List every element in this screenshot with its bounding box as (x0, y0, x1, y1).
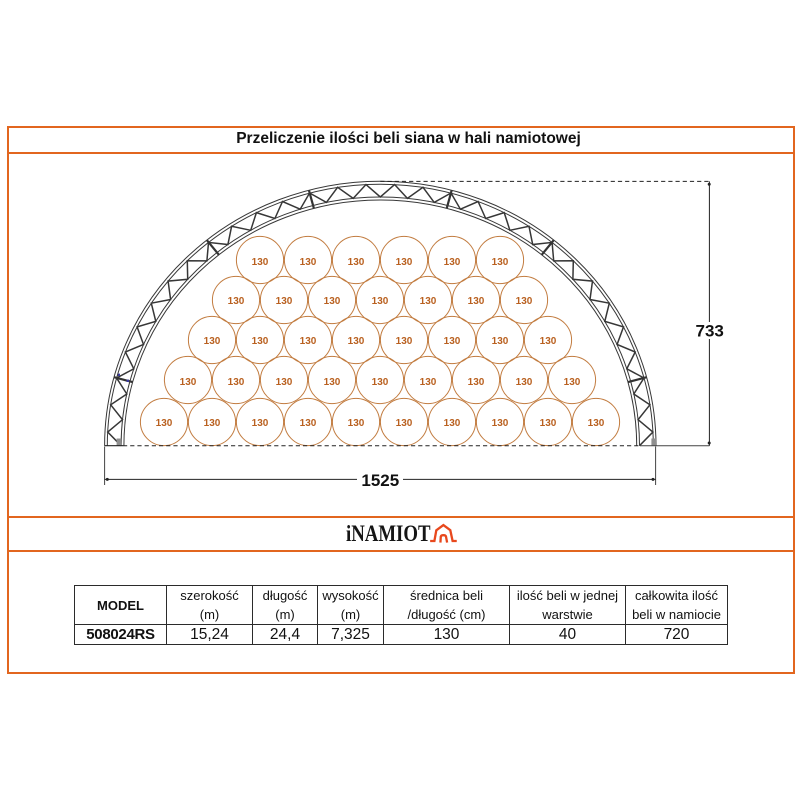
svg-text:130: 130 (252, 336, 269, 347)
svg-text:130: 130 (348, 336, 365, 347)
svg-text:130: 130 (516, 296, 533, 307)
svg-text:130: 130 (468, 377, 485, 388)
svg-text:130: 130 (564, 377, 581, 388)
svg-text:130: 130 (420, 296, 437, 307)
svg-text:130: 130 (204, 336, 221, 347)
svg-text:130: 130 (540, 418, 557, 429)
svg-text:130: 130 (348, 418, 365, 429)
svg-text:130: 130 (588, 418, 605, 429)
svg-text:130: 130 (372, 377, 389, 388)
svg-text:130: 130 (324, 296, 341, 307)
svg-text:130: 130 (516, 377, 533, 388)
svg-text:130: 130 (396, 336, 413, 347)
svg-text:130: 130 (492, 418, 509, 429)
svg-text:130: 130 (252, 418, 269, 429)
svg-text:130: 130 (372, 296, 389, 307)
svg-text:130: 130 (348, 257, 365, 268)
svg-text:130: 130 (468, 296, 485, 307)
svg-text:130: 130 (444, 418, 461, 429)
svg-text:130: 130 (444, 336, 461, 347)
svg-text:130: 130 (156, 418, 173, 429)
svg-text:130: 130 (228, 377, 245, 388)
svg-text:130: 130 (324, 377, 341, 388)
svg-text:130: 130 (300, 418, 317, 429)
svg-text:733: 733 (696, 322, 724, 341)
svg-text:130: 130 (300, 257, 317, 268)
svg-text:130: 130 (492, 257, 509, 268)
svg-text:130: 130 (276, 296, 293, 307)
svg-text:130: 130 (180, 377, 197, 388)
svg-text:iNAMIOT: iNAMIOT (346, 521, 431, 547)
svg-text:130: 130 (492, 336, 509, 347)
svg-text:130: 130 (396, 418, 413, 429)
svg-text:130: 130 (420, 377, 437, 388)
svg-text:130: 130 (204, 418, 221, 429)
svg-text:130: 130 (444, 257, 461, 268)
svg-text:130: 130 (228, 296, 245, 307)
svg-text:130: 130 (396, 257, 413, 268)
svg-text:130: 130 (276, 377, 293, 388)
svg-text:1525: 1525 (361, 471, 399, 490)
svg-text:130: 130 (252, 257, 269, 268)
svg-text:130: 130 (540, 336, 557, 347)
svg-text:130: 130 (300, 336, 317, 347)
